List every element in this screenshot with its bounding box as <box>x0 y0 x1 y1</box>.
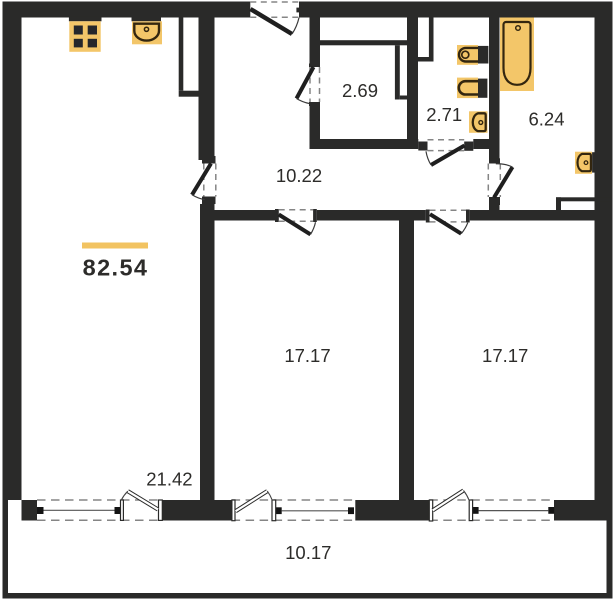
svg-text:21.42: 21.42 <box>146 469 192 490</box>
svg-text:82.54: 82.54 <box>83 255 149 281</box>
svg-text:17.17: 17.17 <box>482 345 528 366</box>
svg-text:17.17: 17.17 <box>284 345 330 366</box>
svg-text:2.69: 2.69 <box>342 80 378 101</box>
svg-text:2.71: 2.71 <box>426 104 462 125</box>
svg-text:10.17: 10.17 <box>285 542 331 563</box>
svg-text:6.24: 6.24 <box>528 109 564 130</box>
svg-text:10.22: 10.22 <box>276 165 322 186</box>
